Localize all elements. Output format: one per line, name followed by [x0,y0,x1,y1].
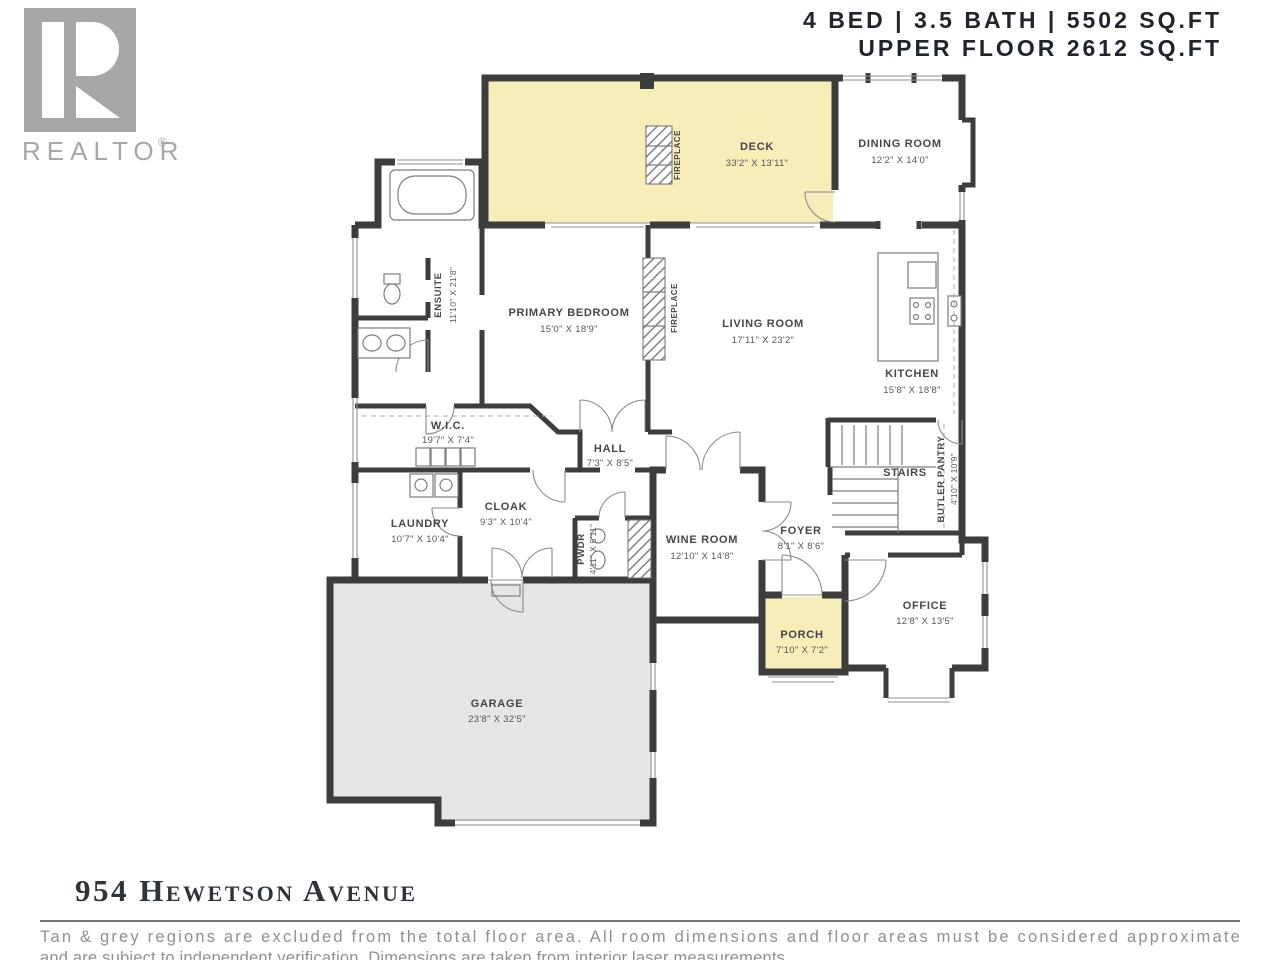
dining-wall-bump [962,120,973,185]
room-living: LIVING ROOM 17'11" X 23'2" [722,318,804,346]
deck-fireplace [646,126,672,184]
porch-dims: 7'10" X 7'2" [776,645,828,656]
hall-label: HALL [594,443,626,455]
wic-cubby [446,448,460,466]
header-line2: UPPER FLOOR 2612 SQ.FT [858,35,1222,61]
wic-cubby [416,448,430,466]
deck-label: DECK [740,141,774,153]
bedroom-double-door [580,400,645,432]
cloak-label: CLOAK [485,501,528,513]
office-door-arc [845,560,886,601]
registered-mark: ® [158,135,167,149]
realtor-logo: REALTOR ® [22,8,184,166]
foyer-dims: 8'1" X 8'6" [778,541,824,552]
kitchen-dims: 15'8" X 18'8" [883,385,941,396]
cloak-dims: 9'3" X 10'4" [480,517,532,528]
butler-dims: 4'10" X 10'9" [949,453,959,505]
room-kitchen: KITCHEN 15'8" X 18'8" [883,368,941,396]
room-cloak: CLOAK 9'3" X 10'4" [480,501,532,528]
pwdr-door-arc [599,492,625,518]
laundry-dims: 10'7" X 10'4" [391,534,449,545]
address-title: 954 Hewetson Avenue [75,873,418,908]
living-dims: 17'11" X 23'2" [732,335,794,346]
deck-dims: 33'2" X 13'11" [726,158,788,169]
header-line1: 4 BED | 3.5 BATH | 5502 SQ.FT [803,7,1222,33]
front-door-arc [782,555,822,595]
toilet [384,284,400,304]
stairs-label: STAIRS [883,467,927,479]
room-ensuite: ENSUITE 11'10" X 21'8" [433,267,458,323]
room-hall: HALL 7'3" X 8'5" [587,443,633,469]
garage-dims: 23'8" X 32'5" [468,714,526,725]
fixtures [358,170,961,569]
room-wic: W.I.C. 19'7" X 7'4" [422,420,474,446]
washer [410,474,433,497]
dining-label: DINING ROOM [858,138,941,150]
deck-post [640,73,654,89]
pwdr-dims: 4'11" X 5'11" [588,524,598,575]
header: 4 BED | 3.5 BATH | 5502 SQ.FT UPPER FLOO… [803,7,1222,61]
wine-label: WINE ROOM [666,534,738,546]
porch-label: PORCH [780,629,823,641]
living-fireplace-label: FIREPLACE [670,283,679,333]
room-foyer: FOYER 8'1" X 8'6" [778,525,824,552]
room-butler: BUTLER PANTRY 4'10" X 10'9" [936,435,959,522]
dryer [435,474,458,497]
wic-dims: 19'7" X 7'4" [422,435,474,446]
hall-dims: 7'3" X 8'5" [587,458,633,469]
foyer-label: FOYER [780,525,821,537]
void-hatch [628,520,651,578]
room-laundry: LAUNDRY 10'7" X 10'4" [391,518,449,545]
laundry-label: LAUNDRY [391,518,449,530]
office-dims: 12'8" X 13'5" [896,616,954,627]
pwdr-label: PWDR [576,533,587,564]
office-label: OFFICE [903,600,948,612]
kitchen-label: KITCHEN [885,368,939,380]
wine-double-door [666,432,740,470]
living-fireplace [643,258,665,360]
toilet-tank [384,274,400,284]
cloak-closet-doors [492,548,552,578]
ensuite-dims: 11'10" X 21'8" [448,267,458,323]
disclaimer-line2: and are subject to independent verificat… [40,949,790,960]
primary-label: PRIMARY BEDROOM [508,307,629,319]
vanity-sink [363,335,381,351]
ensuite-label: ENSUITE [433,272,444,317]
room-wine: WINE ROOM 12'10" X 14'8" [666,534,738,562]
dining-dims: 12'2" X 14'0" [871,155,929,166]
room-primary: PRIMARY BEDROOM 15'0" X 18'9" [508,307,629,335]
vanity-sink [387,335,405,351]
living-label: LIVING ROOM [722,318,804,330]
bathtub [390,170,474,220]
butler-label: BUTLER PANTRY [936,435,947,522]
primary-dims: 15'0" X 18'9" [540,324,598,335]
deck-fireplace-label: FIREPLACE [673,130,682,180]
room-pwdr: PWDR 4'11" X 5'11" [576,524,598,575]
cloak-door-arc [533,470,565,502]
wine-dims: 12'10" X 14'8" [670,551,733,562]
realtor-r-stem [42,22,64,118]
wic-cubby [431,448,445,466]
footer: 954 Hewetson Avenue Tan & grey regions a… [40,873,1240,960]
wic-cubby [461,448,475,466]
room-office: OFFICE 12'8" X 13'5" [896,600,954,627]
room-dining: DINING ROOM 12'2" X 14'0" [858,138,941,166]
wic-label: W.I.C. [431,420,465,432]
disclaimer-line1: Tan & grey regions are excluded from the… [40,928,1240,946]
garage-label: GARAGE [471,698,523,710]
floorplan-canvas: DECK 33'2" X 13'11" DINING ROOM 12'2" X … [0,0,1280,960]
